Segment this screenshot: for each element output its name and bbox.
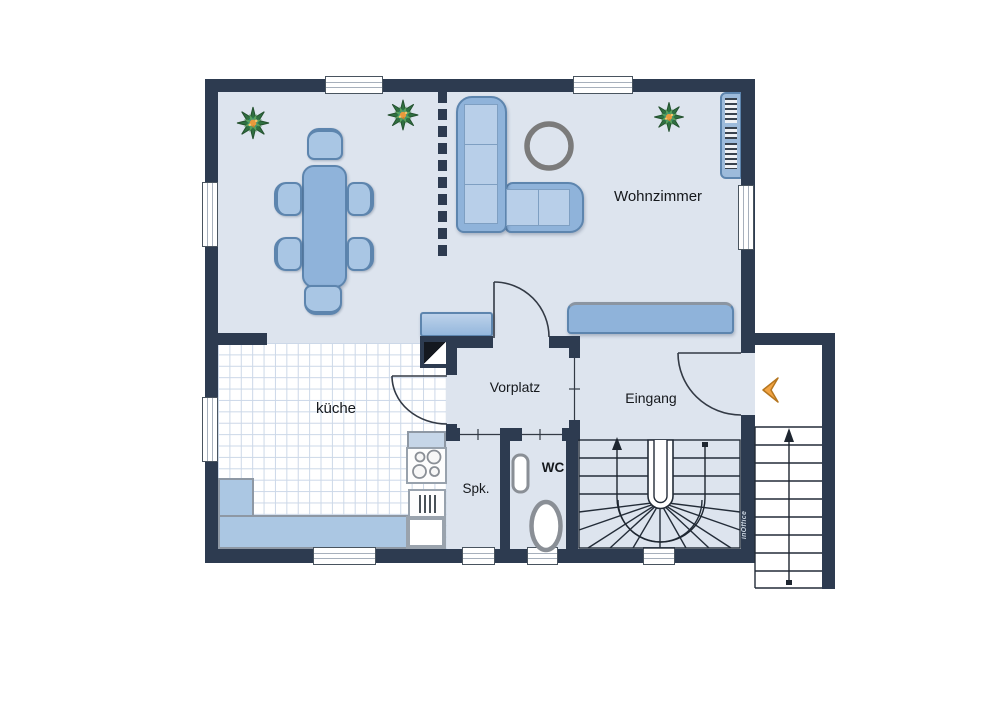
doorway-wc: [522, 428, 562, 441]
oven: [406, 516, 446, 549]
room-label-spk: Spk.: [446, 481, 506, 496]
room-label-kueche: küche: [290, 400, 382, 417]
wall-right: [741, 92, 755, 549]
books: [725, 98, 737, 123]
room-label-wohnzimmer: Wohnzimmer: [598, 188, 718, 205]
vendor-logo: inOffice: [741, 503, 751, 547]
stove: [406, 447, 447, 484]
window: [573, 76, 633, 94]
dining-chair: [347, 182, 374, 216]
books: [725, 143, 737, 169]
dishwasher-vents: [419, 495, 436, 513]
dishwasher: [408, 489, 446, 518]
doorway-entrance: [741, 353, 755, 415]
sideboard: [420, 312, 493, 337]
window: [325, 76, 383, 94]
wall-wc-stair: [566, 428, 578, 549]
doorway-kitchen: [446, 375, 457, 424]
wall-top: [205, 79, 755, 92]
dining-chair: [274, 237, 302, 271]
wall-exterior-top: [741, 333, 835, 345]
bookshelf: [720, 92, 742, 179]
shaft-symbol: [420, 338, 450, 368]
room-label-vorplatz: Vorplatz: [465, 379, 565, 395]
wall-kitchen-stub: [205, 333, 267, 345]
room-divider-dashed-line: [438, 92, 447, 256]
window: [738, 185, 754, 250]
window: [527, 547, 558, 565]
exterior-up-arrow: [784, 428, 794, 442]
floorplan-canvas: Wohnzimmer küche Vorplatz Eingang Spk. W…: [0, 0, 1000, 707]
exterior-stair-direction: [784, 428, 794, 585]
doorway-wohnzimmer-vorplatz: [493, 336, 549, 348]
kitchen-counter-bottom: [218, 515, 409, 549]
room-label-wc: WC: [528, 460, 578, 475]
exterior-stairs: [755, 427, 822, 588]
wall-left: [205, 92, 218, 563]
entrance-landing: [755, 345, 822, 427]
window: [202, 182, 218, 247]
exterior-start-dot: [786, 580, 792, 585]
dining-chair: [274, 182, 302, 216]
dining-chair: [304, 285, 342, 315]
dining-chair: [347, 237, 374, 271]
dining-table: [302, 165, 347, 288]
doorway-spk: [460, 428, 500, 441]
room-label-eingang: Eingang: [601, 390, 701, 406]
window: [313, 547, 376, 565]
sofa-cushions: [506, 189, 570, 226]
sofa-cushions: [464, 104, 498, 224]
passage-vorplatz-eingang: [569, 358, 580, 420]
wall-bench-sofa: [567, 302, 734, 334]
window: [462, 547, 495, 565]
window: [202, 397, 218, 462]
books: [725, 127, 737, 139]
dining-chair: [307, 128, 343, 160]
window: [643, 547, 675, 565]
wall-exterior-right: [822, 333, 835, 589]
